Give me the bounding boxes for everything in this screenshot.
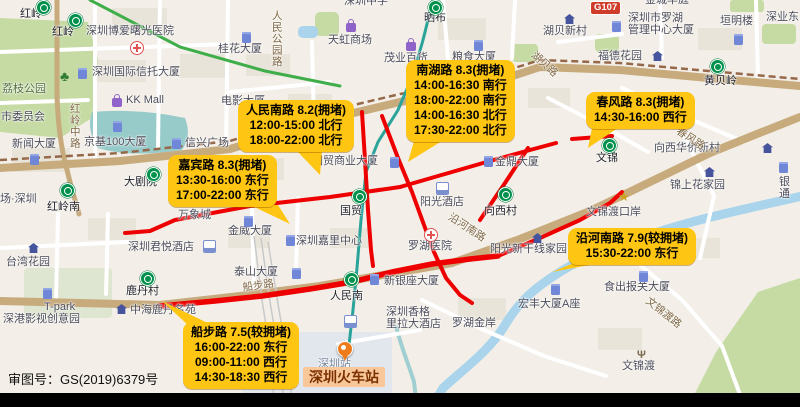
bottom-bar <box>0 393 800 407</box>
hotel-icon <box>203 240 216 253</box>
metro-icon <box>140 271 155 286</box>
map-label: 船步路 <box>242 279 275 295</box>
map-label: 黄贝岭 <box>704 75 737 87</box>
bldg-icon <box>484 156 493 167</box>
bldg-icon <box>78 68 87 79</box>
metro-icon <box>344 272 359 287</box>
map-label: 湖贝新村 <box>543 25 587 37</box>
bldg-icon <box>370 274 379 285</box>
tree-icon <box>60 68 69 86</box>
bag-icon <box>406 42 416 51</box>
map-label: 文锦渡路 <box>643 296 683 331</box>
bldg-icon <box>113 121 122 132</box>
map-label: 深港影视创意园 <box>3 313 80 325</box>
bldg-icon <box>779 162 788 173</box>
house-icon <box>116 304 127 314</box>
bldg-icon <box>612 21 621 32</box>
map-label: 红岭中路 <box>68 103 80 149</box>
map-label: 泰山大厦 <box>234 266 278 278</box>
map-label: 人民南 <box>330 290 363 302</box>
map-label: 湖贝路 <box>528 50 559 80</box>
bldg-icon <box>244 216 253 227</box>
house-icon <box>28 243 39 253</box>
train-station-highlight: 深圳火车站 <box>303 367 385 387</box>
hotel-icon <box>344 315 357 328</box>
metro-icon <box>352 189 367 204</box>
bldg-icon <box>474 40 483 51</box>
house-icon <box>532 233 543 243</box>
map-label: 京基100大厦 <box>84 136 146 148</box>
map-label: 场·深圳 <box>0 193 37 205</box>
map-labels-layer: 红岭红岭深圳博爱曙光医院桂花大厦深圳国际信托大厦KK Mall荔枝公园市委员会新… <box>0 0 800 407</box>
map-label: 银通 <box>779 176 800 201</box>
bldg-icon <box>639 271 648 282</box>
map-label: 宏丰大厦A座 <box>518 298 580 310</box>
bldg-icon <box>734 34 743 45</box>
map-label: 国贸商业大厦 <box>312 155 378 167</box>
hospital-icon <box>424 228 438 242</box>
map-label: 罗湖金岸 <box>452 317 496 329</box>
map-label: 文锦渡口岸 <box>586 206 641 218</box>
bldg-icon <box>172 138 181 149</box>
map-label: 人民公园路 <box>270 10 282 68</box>
map-label: 红岭 <box>52 26 74 38</box>
map-label: 深圳香格 里拉大酒店 <box>386 306 441 331</box>
map-label: 深圳嘉里中心 <box>296 235 362 247</box>
map-label: 新闻大厦 <box>12 138 56 150</box>
map-label: 阳光酒店 <box>420 196 464 208</box>
map-label: 阳光新干线家园 <box>490 243 567 255</box>
map-label: KK Mall <box>126 94 164 106</box>
map-label: 茂业百货 <box>384 52 428 64</box>
star-icon <box>618 188 630 206</box>
bldg-icon <box>43 288 52 299</box>
metro-icon <box>602 138 617 153</box>
map-label: 深圳市罗湖 管理中心大厦 <box>628 12 694 37</box>
map-label: 中海鹿丹名苑 <box>130 304 196 316</box>
map-label: 粮食大厦 <box>452 51 496 63</box>
map-label: 深业东 <box>766 11 799 23</box>
bag-icon <box>112 98 122 107</box>
house-icon <box>762 143 773 153</box>
map-label: 深圳博爱曙光医院 <box>86 25 174 37</box>
map-canvas[interactable]: 红岭红岭深圳博爱曙光医院桂花大厦深圳国际信托大厦KK Mall荔枝公园市委员会新… <box>0 0 800 407</box>
map-label: 深圳中学 <box>344 0 388 7</box>
metro-icon <box>146 167 161 182</box>
map-label: 天虹商场 <box>328 34 372 46</box>
metro-icon <box>60 183 75 198</box>
map-label: 市委员会 <box>1 111 45 123</box>
map-label: 万象城 <box>178 209 211 221</box>
house-icon <box>564 14 575 24</box>
map-attribution: 审图号：GS(2019)6379号 <box>8 369 158 388</box>
metro-icon <box>68 13 83 28</box>
map-label: 红岭南 <box>47 201 80 213</box>
bldg-icon <box>30 154 39 165</box>
map-label: 荔枝公园 <box>2 83 46 95</box>
metro-icon <box>36 0 51 15</box>
highway-badge: G107 <box>590 1 621 15</box>
map-label: 福德花园 <box>598 50 642 62</box>
metro-icon <box>710 59 725 74</box>
metro-icon <box>498 187 513 202</box>
map-label: 信兴广场 <box>185 137 229 149</box>
metro-icon <box>428 0 443 15</box>
bldg-icon <box>292 268 301 279</box>
hotel-icon <box>436 182 449 195</box>
bldg-icon <box>551 284 560 295</box>
map-label: 电影大厦 <box>221 95 265 107</box>
bldg-icon <box>242 32 251 43</box>
house-icon <box>652 51 663 61</box>
bag-icon <box>346 23 356 32</box>
map-label: 深圳国际信托大厦 <box>92 66 180 78</box>
map-label: 垣明楼 <box>720 15 753 27</box>
bldg-icon <box>390 157 399 168</box>
house-icon <box>704 167 715 177</box>
bldg-icon <box>286 235 295 246</box>
hospital-icon <box>130 41 144 55</box>
map-label: 锦上花家园 <box>670 179 725 191</box>
map-label: 向西村 <box>484 205 517 217</box>
map-label: 新银座大厦 <box>384 275 439 287</box>
map-label: 金城华庭 <box>645 0 689 6</box>
fork-icon <box>637 345 646 363</box>
map-label: 台湾花园 <box>6 256 50 268</box>
map-label: 桂花大厦 <box>218 43 262 55</box>
map-label: T-park <box>44 301 75 313</box>
map-label: 深圳君悦酒店 <box>128 241 194 253</box>
trainpin-icon <box>337 341 353 357</box>
map-label: 金鼎大厦 <box>495 156 539 168</box>
map-label: 国贸 <box>340 205 362 217</box>
map-label: 食出报关大厦 <box>604 281 670 293</box>
map-label: 文锦 <box>596 152 618 164</box>
map-label: 鹿丹村 <box>126 285 159 297</box>
